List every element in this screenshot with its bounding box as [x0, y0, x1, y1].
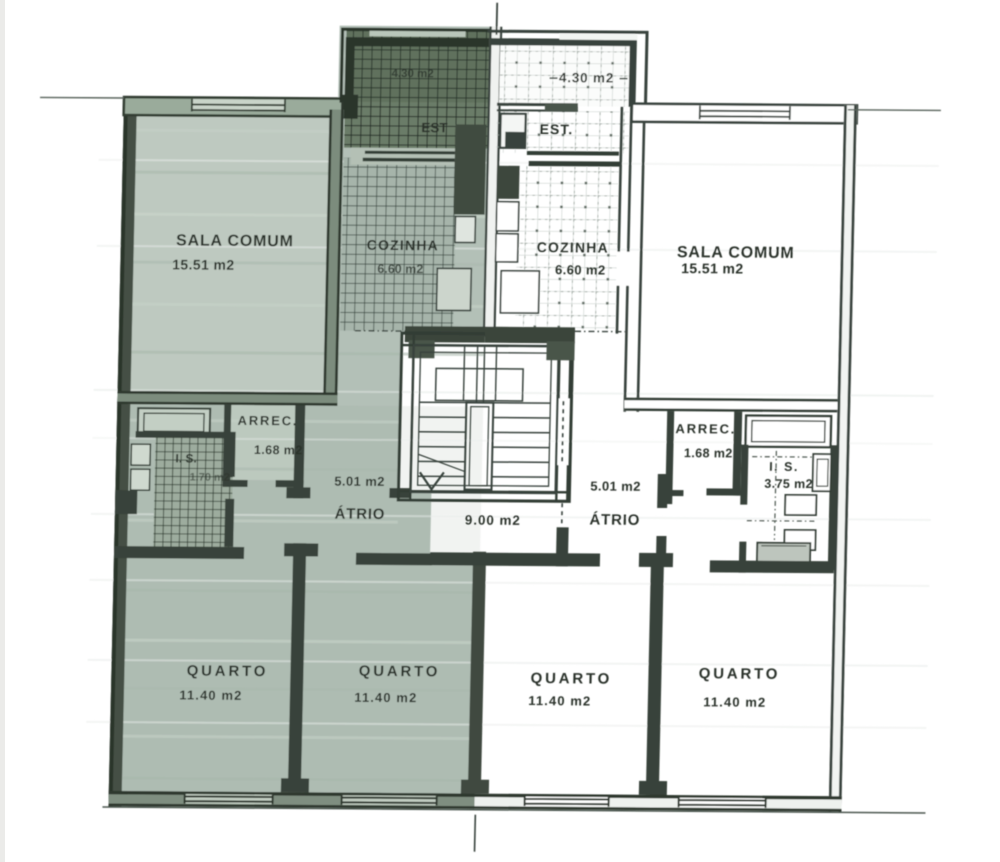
svg-text:1.68 m2: 1.68 m2 — [254, 443, 303, 457]
svg-text:ÁTRIO: ÁTRIO — [334, 506, 385, 523]
svg-text:ARREC.: ARREC. — [237, 413, 298, 428]
svg-text:ÁTRIO: ÁTRIO — [589, 511, 640, 528]
svg-text:4.30 m2: 4.30 m2 — [391, 68, 433, 80]
svg-text:5.01 m2: 5.01 m2 — [334, 474, 385, 489]
svg-text:11.40 m2: 11.40 m2 — [703, 694, 766, 709]
svg-text:5.01 m2: 5.01 m2 — [590, 478, 641, 493]
svg-text:6.60 m2: 6.60 m2 — [377, 262, 423, 276]
svg-text:EST: EST — [421, 120, 448, 135]
svg-text:4.30 m2: 4.30 m2 — [559, 70, 614, 85]
svg-text:QUARTO: QUARTO — [699, 665, 781, 683]
svg-text:QUARTO: QUARTO — [359, 663, 441, 681]
svg-text:SALA COMUM: SALA COMUM — [176, 232, 294, 250]
svg-text:3.75 m2: 3.75 m2 — [764, 477, 813, 491]
svg-text:15.51 m2: 15.51 m2 — [681, 260, 744, 276]
svg-text:I. S.: I. S. — [769, 460, 799, 474]
svg-text:9.00 m2: 9.00 m2 — [465, 513, 521, 528]
svg-text:6.60 m2: 6.60 m2 — [555, 262, 606, 277]
svg-text:11.40 m2: 11.40 m2 — [179, 688, 242, 703]
svg-text:EST.: EST. — [539, 121, 573, 137]
svg-text:QUARTO: QUARTO — [530, 670, 612, 688]
svg-text:1.68 m2: 1.68 m2 — [684, 446, 733, 460]
svg-text:COZINHA: COZINHA — [537, 239, 610, 256]
svg-text:I. S.: I. S. — [175, 451, 197, 465]
svg-text:11.40 m2: 11.40 m2 — [528, 693, 591, 708]
svg-text:COZINHA: COZINHA — [367, 237, 440, 254]
svg-text:15.51 m2: 15.51 m2 — [172, 256, 235, 272]
svg-text:ARREC.: ARREC. — [675, 421, 736, 436]
svg-text:QUARTO: QUARTO — [187, 663, 269, 681]
svg-text:1.70 m2: 1.70 m2 — [189, 472, 230, 484]
svg-text:11.40 m2: 11.40 m2 — [354, 690, 417, 705]
